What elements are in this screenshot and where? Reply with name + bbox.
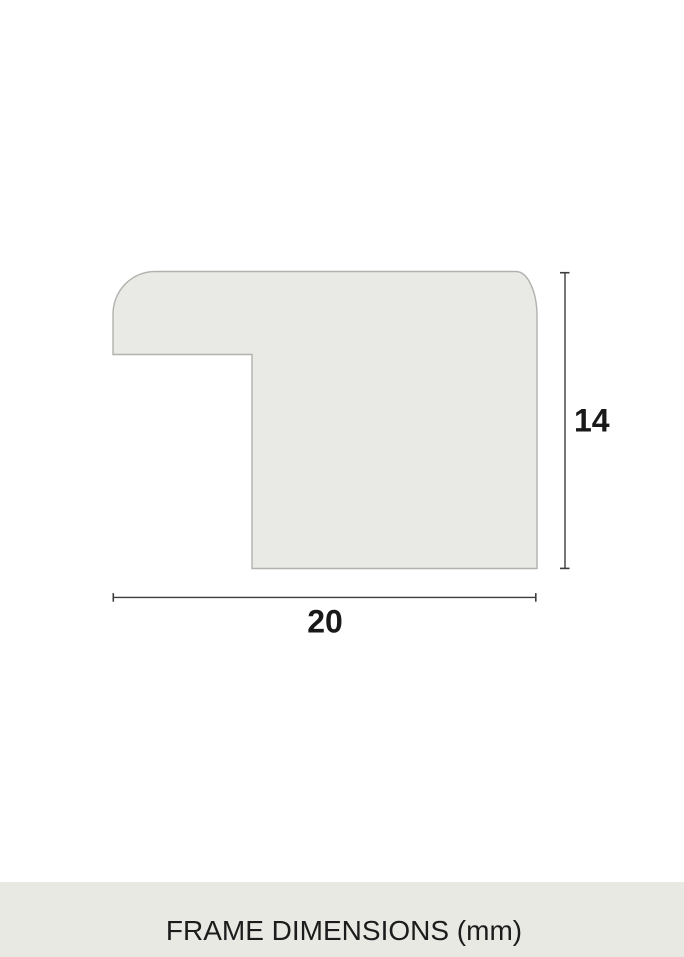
svg-text:14: 14 (574, 403, 610, 439)
svg-text:20: 20 (307, 603, 343, 639)
